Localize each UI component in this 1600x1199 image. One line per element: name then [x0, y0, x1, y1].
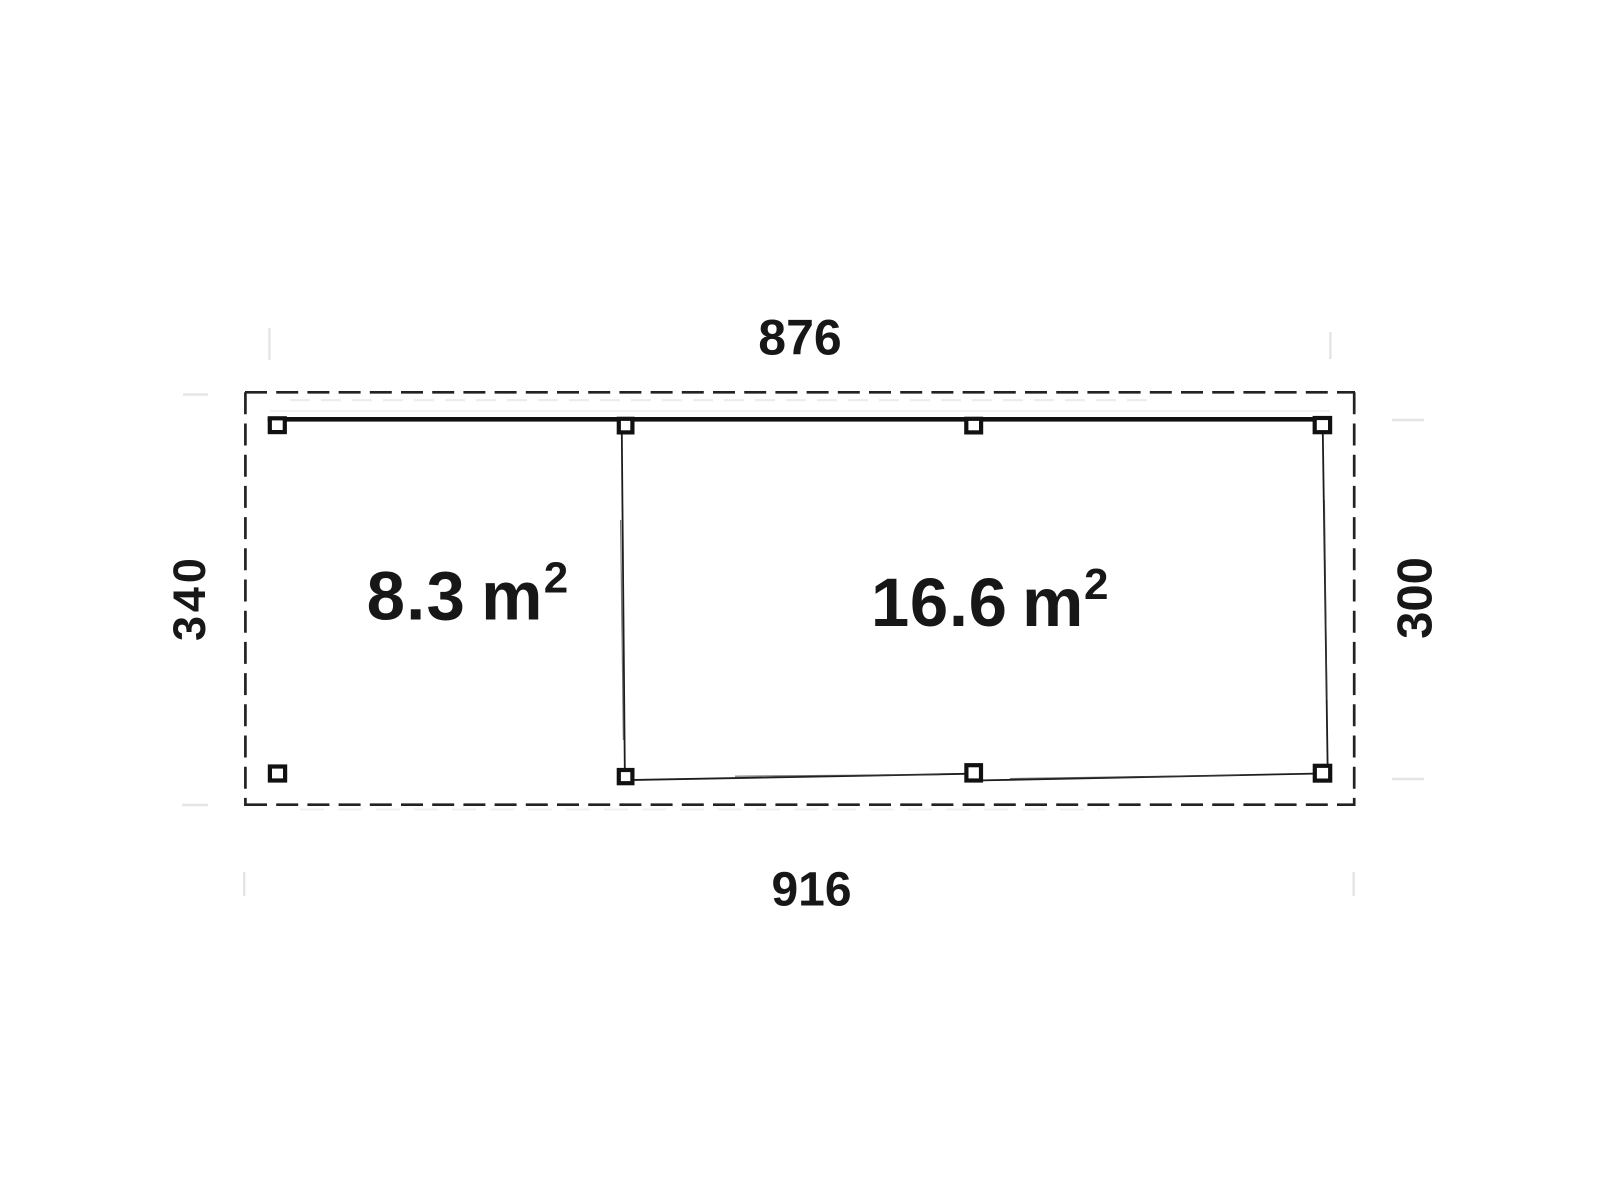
svg-text:876: 876 — [758, 310, 841, 366]
svg-text:916: 916 — [771, 864, 851, 917]
svg-text:8.3 m2: 8.3 m2 — [367, 553, 570, 634]
svg-text:300: 300 — [1388, 557, 1442, 639]
svg-text:16.6 m2: 16.6 m2 — [871, 560, 1109, 641]
svg-text:340: 340 — [164, 554, 215, 641]
